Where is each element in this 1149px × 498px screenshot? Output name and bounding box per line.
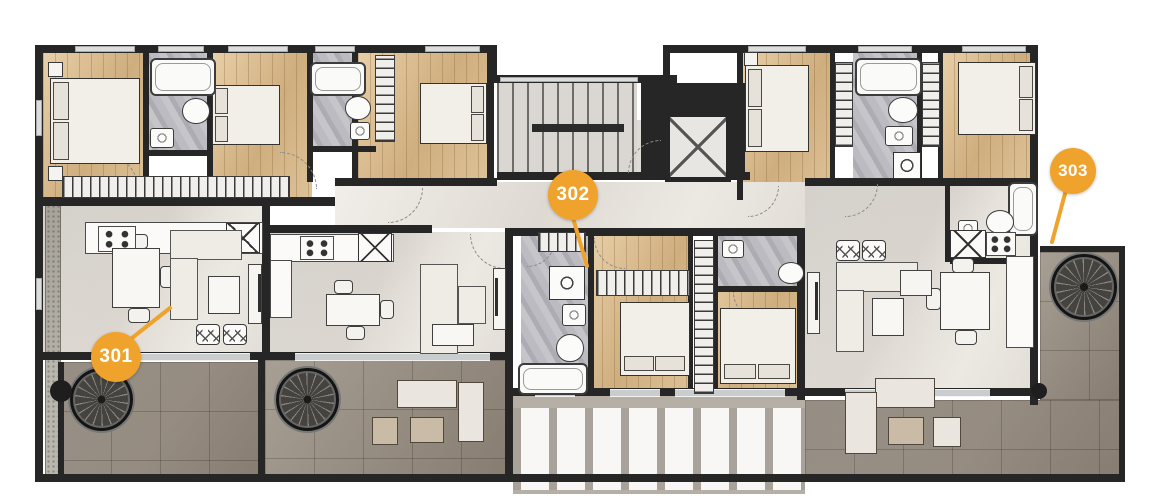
kitchen-counter-303 [1006,256,1034,348]
unit-301-badge[interactable]: 301 [91,332,141,382]
sliding-door-302 [295,353,490,361]
coffee-table-icon [432,324,474,346]
sink-icon [562,304,586,326]
toilet-icon [556,334,584,362]
toilet-icon [986,210,1014,234]
pouf-icon [836,240,860,261]
sofa-icon [170,230,242,260]
window-icon [962,46,1026,52]
outdoor-sofa-icon [845,392,877,454]
bathtub-icon [150,58,216,96]
toilet-icon [778,262,804,284]
tv-icon [815,282,818,320]
kitchen-counter-302b [270,260,292,318]
pantry-icon [358,233,392,262]
outdoor-sofa-icon [875,378,935,408]
side-table-icon [900,270,932,296]
window-icon [36,278,42,310]
bathtub-icon [310,62,366,96]
window-icon [675,389,785,397]
wardrobe-icon [694,240,714,394]
elevator-icon [665,112,731,182]
sink-icon [885,126,913,146]
toilet-icon [182,98,210,124]
outdoor-table-icon [888,417,924,445]
sink-icon [350,122,370,140]
tv-icon [258,274,261,312]
spiral-staircase-icon [1051,254,1117,320]
pouf-icon [223,324,247,345]
unit-303-badge[interactable]: 303 [1050,148,1096,194]
bathtub-icon [855,58,922,96]
unit-302-badge[interactable]: 302 [548,170,598,220]
window-icon [158,46,204,52]
stove-icon [300,236,334,260]
washing-machine-icon [549,266,585,300]
pouf-icon [862,240,886,261]
wardrobe-icon [596,270,690,296]
dining-table-icon [326,294,380,326]
stove-icon [986,232,1016,256]
window-icon [610,389,660,397]
sofa-icon [836,290,864,352]
window-icon [228,46,288,52]
floor-plan: 301 302 303 [0,0,1149,498]
round-planter-icon [50,380,72,402]
washing-machine-icon [893,152,921,179]
spiral-staircase-icon [276,368,339,431]
armchair-icon [458,286,486,324]
coffee-table-icon [872,298,904,336]
round-table-icon [1031,383,1047,399]
outdoor-chair-icon [372,417,398,445]
bathtub-icon [1008,182,1038,236]
toilet-icon [888,97,918,123]
tv-console-icon [807,272,820,334]
window-icon [75,46,135,52]
stair-railing [532,124,624,132]
dining-table-icon [112,248,160,308]
outdoor-sofa-icon [397,380,457,408]
window-icon [36,100,42,136]
pouf-icon [196,324,220,345]
sofa-icon [170,258,198,320]
coffee-table-icon [208,276,240,314]
toilet-icon [345,96,371,120]
outdoor-sofa-icon [458,382,484,442]
unit-303-leader [1052,190,1066,242]
sink-icon [150,128,174,148]
outdoor-table-icon [410,417,444,443]
window-icon [858,46,912,52]
window-icon [425,46,480,52]
tv-icon [495,278,498,316]
dining-table-icon [940,272,990,330]
wardrobe-icon [922,62,940,147]
wardrobe-icon [835,62,853,147]
outdoor-chair-icon [933,417,961,447]
window-icon [500,77,638,82]
bathtub-icon [518,363,588,395]
wardrobe-icon [538,232,586,252]
sink-icon [722,240,744,258]
wardrobe-icon [62,176,290,198]
pantry-icon [950,230,986,258]
window-icon [315,46,355,52]
wardrobe-icon [375,55,395,142]
